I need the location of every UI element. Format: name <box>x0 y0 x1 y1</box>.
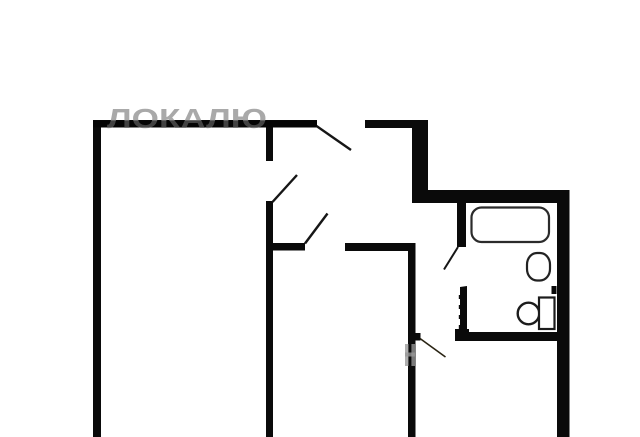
svg-text:ЛОКАЛЮ: ЛОКАЛЮ <box>107 103 267 134</box>
